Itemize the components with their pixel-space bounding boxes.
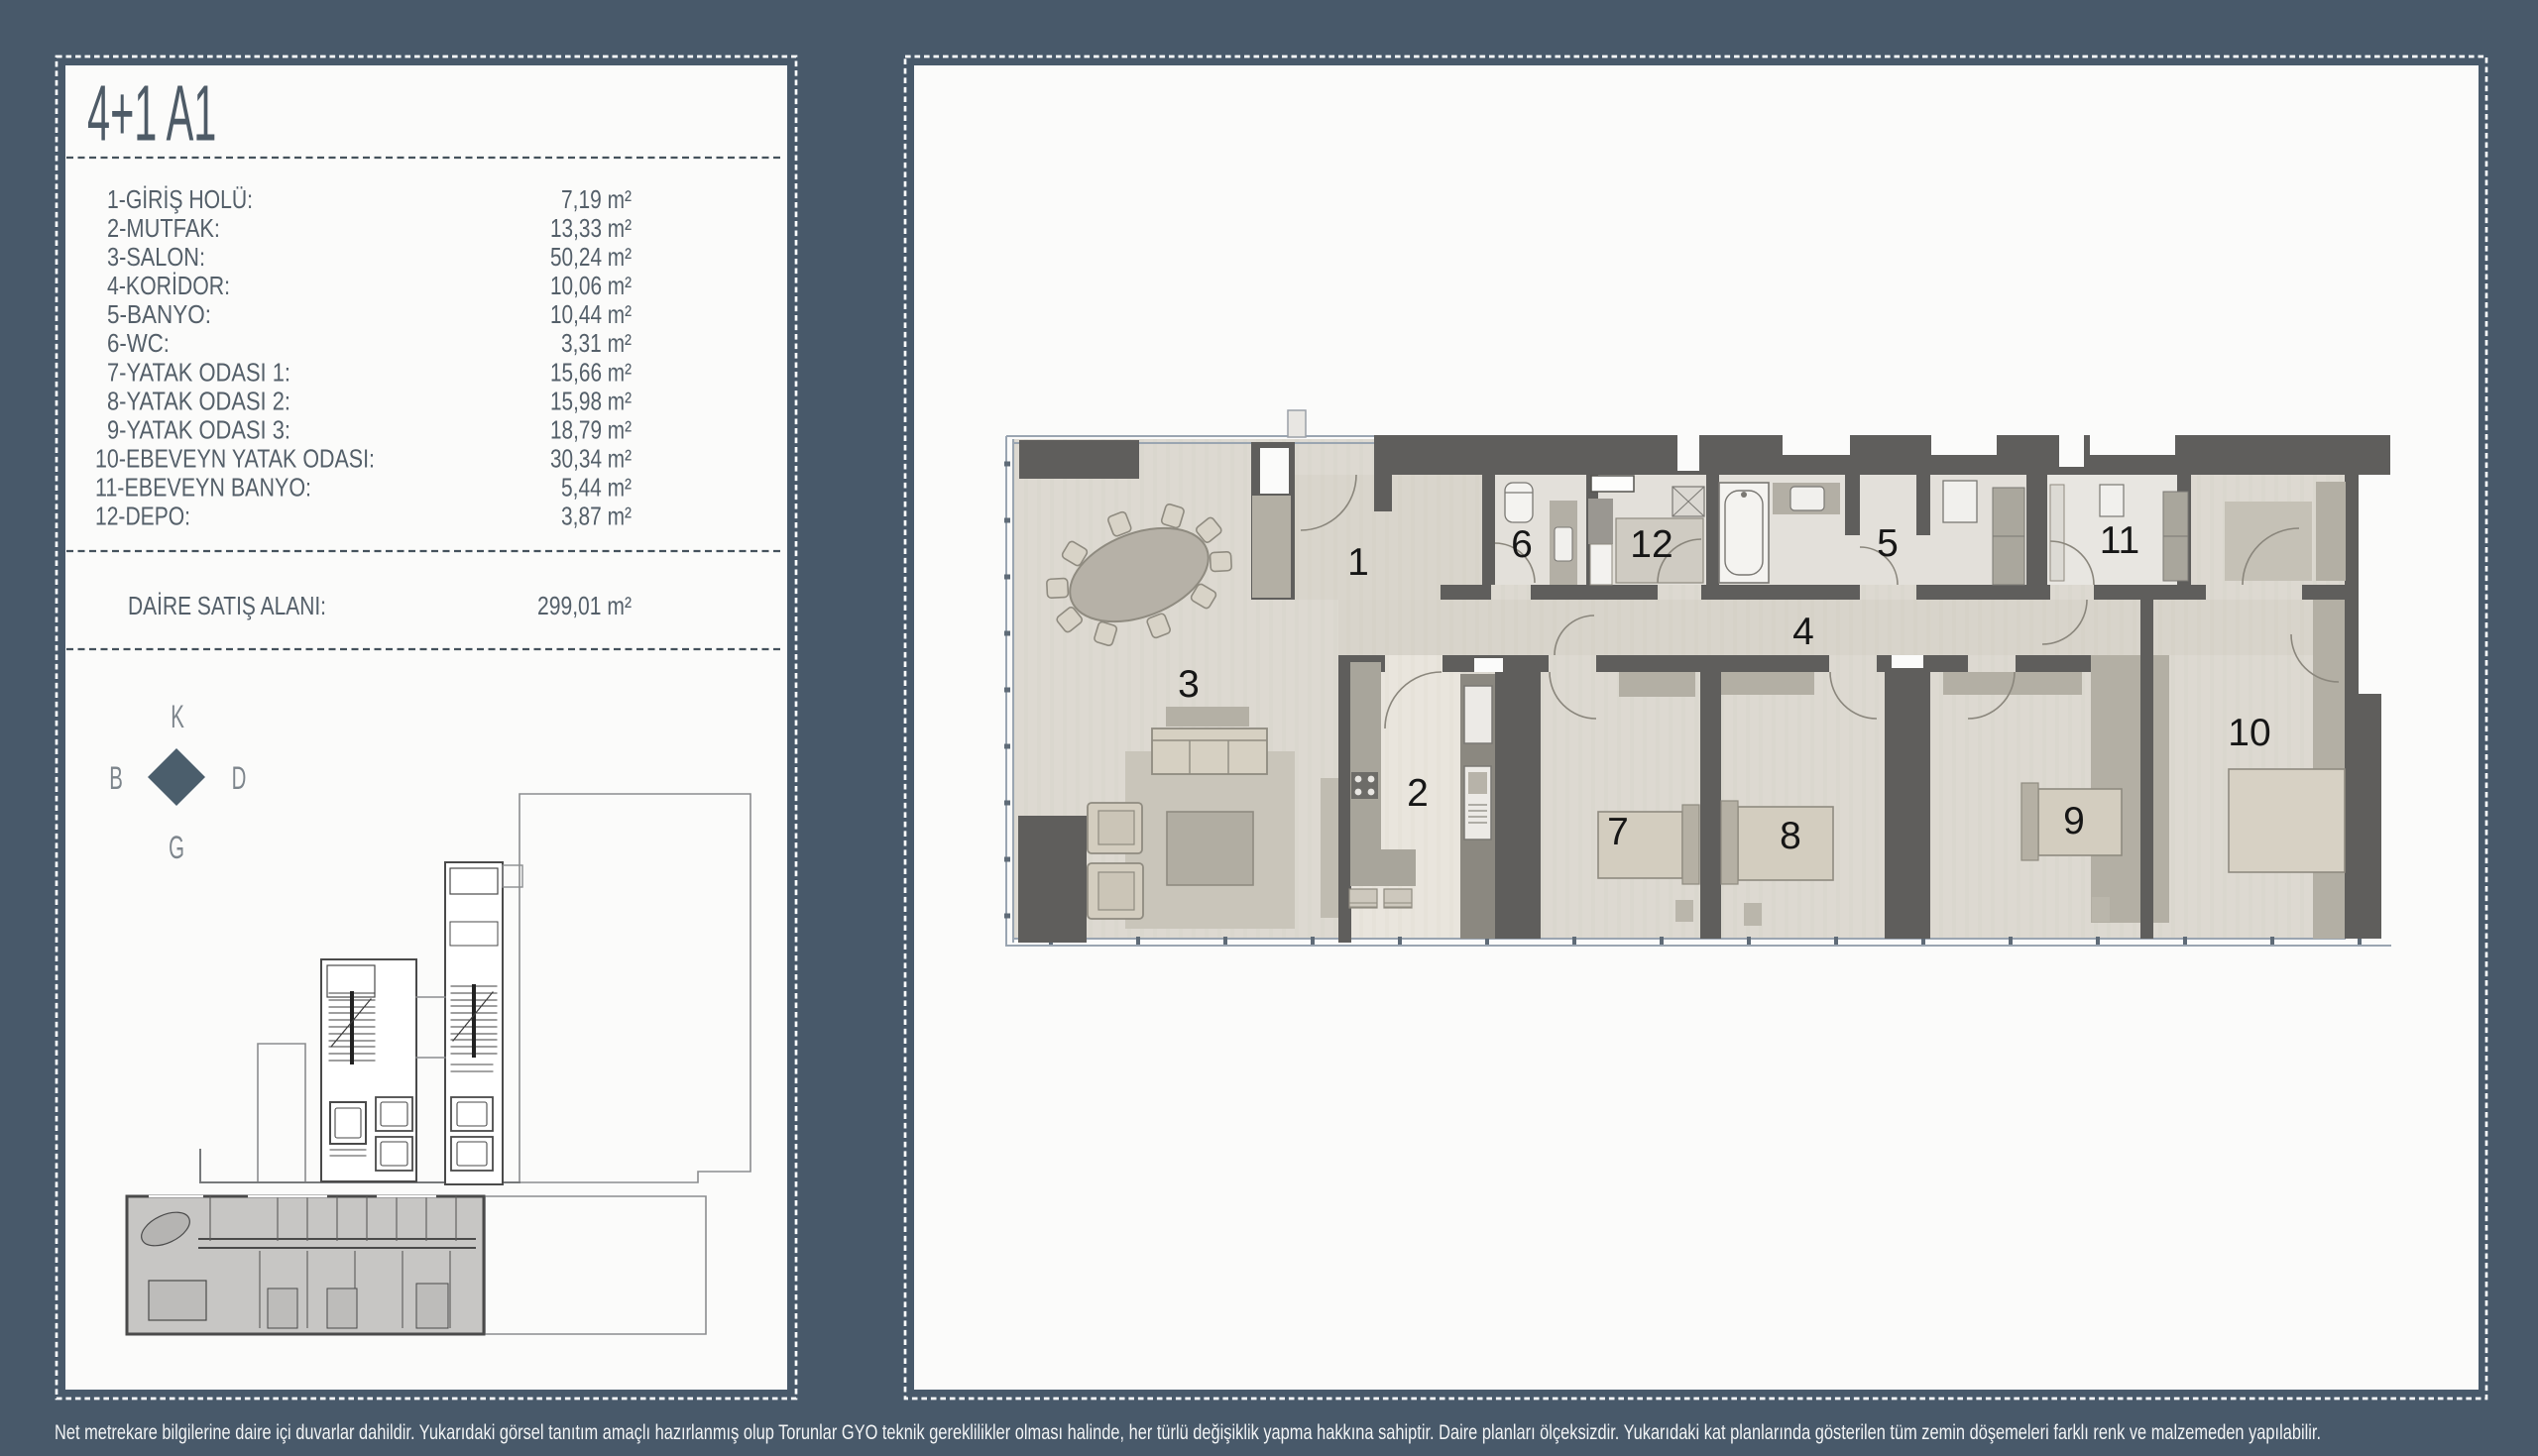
svg-text:DAİRE SATIŞ ALANI:: DAİRE SATIŞ ALANI: [128, 591, 326, 620]
svg-text:7-YATAK ODASI 1:: 7-YATAK ODASI 1: [107, 357, 290, 387]
svg-text:3: 3 [1178, 663, 1200, 706]
svg-text:5-BANYO:: 5-BANYO: [107, 299, 211, 329]
svg-text:Net metrekare bilgilerine dair: Net metrekare bilgilerine daire içi duva… [55, 1420, 2321, 1444]
svg-text:11-EBEVEYN BANYO:: 11-EBEVEYN BANYO: [95, 473, 311, 503]
svg-text:12-DEPO:: 12-DEPO: [95, 502, 190, 531]
svg-text:3,87 m²: 3,87 m² [561, 502, 632, 531]
svg-text:10,44 m²: 10,44 m² [550, 299, 632, 329]
svg-text:6-WC:: 6-WC: [107, 328, 170, 358]
svg-text:8: 8 [1780, 815, 1801, 857]
svg-text:6: 6 [1511, 523, 1533, 566]
svg-text:12: 12 [1630, 523, 1673, 566]
svg-text:30,34 m²: 30,34 m² [550, 443, 632, 473]
svg-text:7: 7 [1607, 811, 1629, 853]
svg-text:299,01 m²: 299,01 m² [537, 591, 632, 620]
svg-text:2-MUTFAK:: 2-MUTFAK: [107, 213, 220, 243]
svg-text:4-KORİDOR:: 4-KORİDOR: [107, 271, 230, 300]
svg-text:13,33 m²: 13,33 m² [550, 213, 632, 243]
svg-text:18,79 m²: 18,79 m² [550, 414, 632, 444]
svg-text:10,06 m²: 10,06 m² [550, 271, 632, 300]
svg-text:15,98 m²: 15,98 m² [550, 386, 632, 415]
svg-text:B: B [109, 759, 123, 796]
svg-text:10: 10 [2228, 712, 2270, 754]
svg-text:4+1 A1: 4+1 A1 [87, 69, 216, 158]
svg-text:4: 4 [1792, 611, 1814, 653]
svg-text:50,24 m²: 50,24 m² [550, 242, 632, 272]
svg-text:D: D [232, 759, 247, 796]
svg-text:1: 1 [1347, 541, 1369, 584]
svg-text:G: G [169, 829, 184, 865]
svg-text:7,19 m²: 7,19 m² [561, 184, 632, 214]
svg-text:K: K [171, 698, 184, 734]
svg-text:11: 11 [2100, 519, 2140, 562]
svg-text:10-EBEVEYN YATAK ODASI:: 10-EBEVEYN YATAK ODASI: [95, 443, 375, 473]
svg-text:9: 9 [2063, 800, 2085, 842]
svg-text:15,66 m²: 15,66 m² [550, 357, 632, 387]
svg-text:1-GİRİŞ HOLÜ:: 1-GİRİŞ HOLÜ: [107, 184, 253, 214]
svg-text:5: 5 [1877, 522, 1899, 565]
svg-text:2: 2 [1407, 772, 1429, 815]
svg-text:3-SALON:: 3-SALON: [107, 242, 205, 272]
svg-text:5,44 m²: 5,44 m² [561, 473, 632, 503]
svg-text:3,31 m²: 3,31 m² [561, 328, 632, 358]
svg-text:9-YATAK ODASI 3:: 9-YATAK ODASI 3: [107, 414, 290, 444]
svg-text:8-YATAK ODASI 2:: 8-YATAK ODASI 2: [107, 386, 290, 415]
